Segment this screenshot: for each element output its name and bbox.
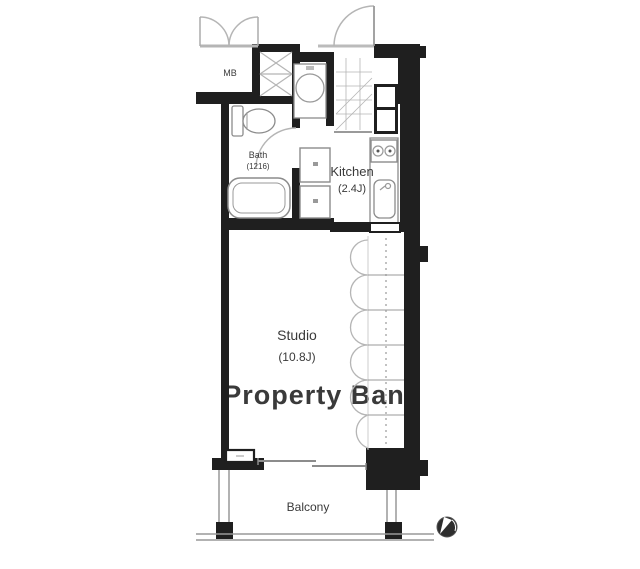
bathtub [228,178,290,218]
wall-right-kitchen [400,104,420,230]
washer-space [300,148,330,182]
kitchen-sink [374,180,395,218]
wall-left [221,104,229,464]
wall-mb-bottom [196,92,254,104]
wall-top-right-nub [418,46,426,58]
kitchen-label: Kitchen [330,164,373,179]
bath-size-label: (1216) [246,162,269,171]
compass-north-icon [437,517,457,537]
washbasin [294,64,326,118]
wall-bathroom-bottom [221,218,334,230]
floorplan-page: Property Bank MB [0,0,640,569]
wall-bathroom-right-lower [292,168,300,222]
balcony-pillar-left [216,522,233,539]
wall-bottom-right-block [366,448,420,490]
floorplan-drawing: Property Bank MB [0,0,640,569]
storage-space [300,186,330,218]
wall-right-nub [420,246,428,262]
wall-genkan-left [326,52,334,126]
studio-label: Studio [277,327,317,343]
balcony-label: Balcony [287,500,330,514]
wall-bottom-right-nub [420,460,428,476]
closet-top-shelf [370,223,400,232]
balcony-pillar-right [385,522,402,539]
wall-right-closet [404,230,420,450]
shoe-box [374,84,398,134]
utility-box [226,450,254,462]
stove [371,140,397,162]
mb-label: MB [223,68,237,78]
watermark-text: Property Bank [223,380,421,410]
bath-label: Bath [249,150,268,160]
wall-entrance-right-top [374,44,420,58]
wall-right-upper [398,58,420,104]
kitchen-size-label: (2.4J) [338,183,366,195]
studio-size-label: (10.8J) [278,350,315,364]
